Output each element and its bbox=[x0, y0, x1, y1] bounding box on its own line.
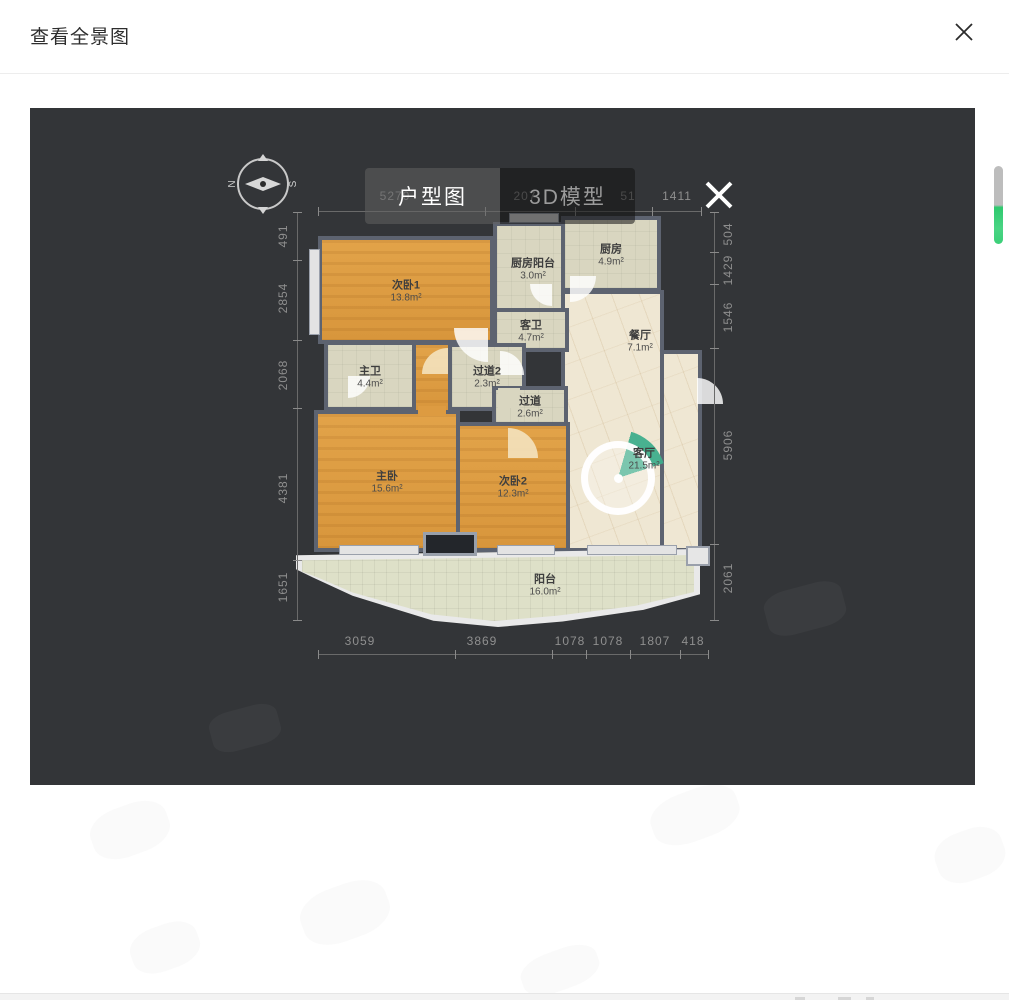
dim-line-bottom bbox=[318, 654, 708, 655]
dim-left-3: 2068 bbox=[276, 360, 290, 391]
dim-line-right bbox=[714, 212, 715, 620]
watermark-blob bbox=[84, 793, 176, 867]
modal-header: 查看全景图 bbox=[0, 0, 1009, 74]
dim-bottom-2: 3869 bbox=[467, 634, 498, 648]
page-title: 查看全景图 bbox=[30, 22, 130, 49]
room-master-bath bbox=[328, 345, 412, 407]
dim-bottom-6: 418 bbox=[681, 634, 704, 648]
watermark-blob bbox=[761, 576, 850, 640]
room-bedroom1 bbox=[322, 240, 490, 340]
dim-top-4: 1411 bbox=[662, 189, 692, 203]
close-icon[interactable] bbox=[953, 21, 975, 43]
scroll-indicator[interactable] bbox=[994, 166, 1003, 244]
dim-line-left bbox=[297, 212, 298, 620]
view-mode-tabs: 户型图 3D模型 bbox=[365, 168, 635, 224]
tab-3d-model[interactable]: 3D模型 bbox=[500, 168, 635, 224]
window-strip bbox=[340, 546, 418, 554]
watermark-blob bbox=[644, 776, 746, 854]
balcony-step bbox=[688, 548, 708, 564]
bottom-bar bbox=[0, 993, 1009, 1000]
dim-bottom-5: 1807 bbox=[640, 634, 671, 648]
dim-bottom-3: 1078 bbox=[555, 634, 586, 648]
dim-left-2: 2854 bbox=[276, 283, 290, 314]
room-master-bedroom bbox=[318, 414, 456, 548]
dim-right-4: 5906 bbox=[721, 430, 735, 461]
floor-patch bbox=[498, 388, 520, 408]
dim-right-1: 504 bbox=[721, 222, 735, 245]
dim-right-3: 1546 bbox=[721, 302, 735, 333]
room-kitchen-balcony bbox=[497, 226, 569, 310]
viewer-close-icon[interactable] bbox=[700, 176, 738, 214]
floorplan-viewer-panel: 次卧113.8m² 厨房阳台3.0m² 厨房4.9m² 客卫4.7m² 餐厅7.… bbox=[30, 108, 975, 785]
pano-center-dot bbox=[614, 474, 623, 483]
dim-bottom-1: 3059 bbox=[345, 634, 376, 648]
room-guest-bath bbox=[497, 312, 565, 348]
watermark-blob bbox=[206, 700, 284, 757]
dim-right-2: 1429 bbox=[721, 255, 735, 286]
window-strip bbox=[588, 546, 676, 554]
watermark-blob bbox=[929, 820, 1009, 891]
dim-left-1: 491 bbox=[276, 224, 290, 247]
dim-right-5: 2061 bbox=[721, 563, 735, 594]
room-balcony bbox=[302, 555, 694, 621]
tab-floorplan[interactable]: 户型图 bbox=[365, 168, 500, 224]
entry-door-arc bbox=[697, 378, 723, 404]
room-living-extension bbox=[664, 354, 698, 548]
dim-left-5: 1651 bbox=[276, 572, 290, 603]
watermark-blob bbox=[124, 914, 205, 980]
watermark-blob bbox=[293, 871, 396, 953]
compass-icon: N S bbox=[233, 154, 293, 214]
bay-niche bbox=[423, 532, 477, 556]
window-strip bbox=[310, 250, 319, 334]
watermark-blob bbox=[516, 938, 605, 1000]
floor-patch bbox=[418, 406, 446, 416]
window-strip bbox=[498, 546, 554, 554]
dim-left-4: 4381 bbox=[276, 473, 290, 504]
dim-bottom-4: 1078 bbox=[593, 634, 624, 648]
